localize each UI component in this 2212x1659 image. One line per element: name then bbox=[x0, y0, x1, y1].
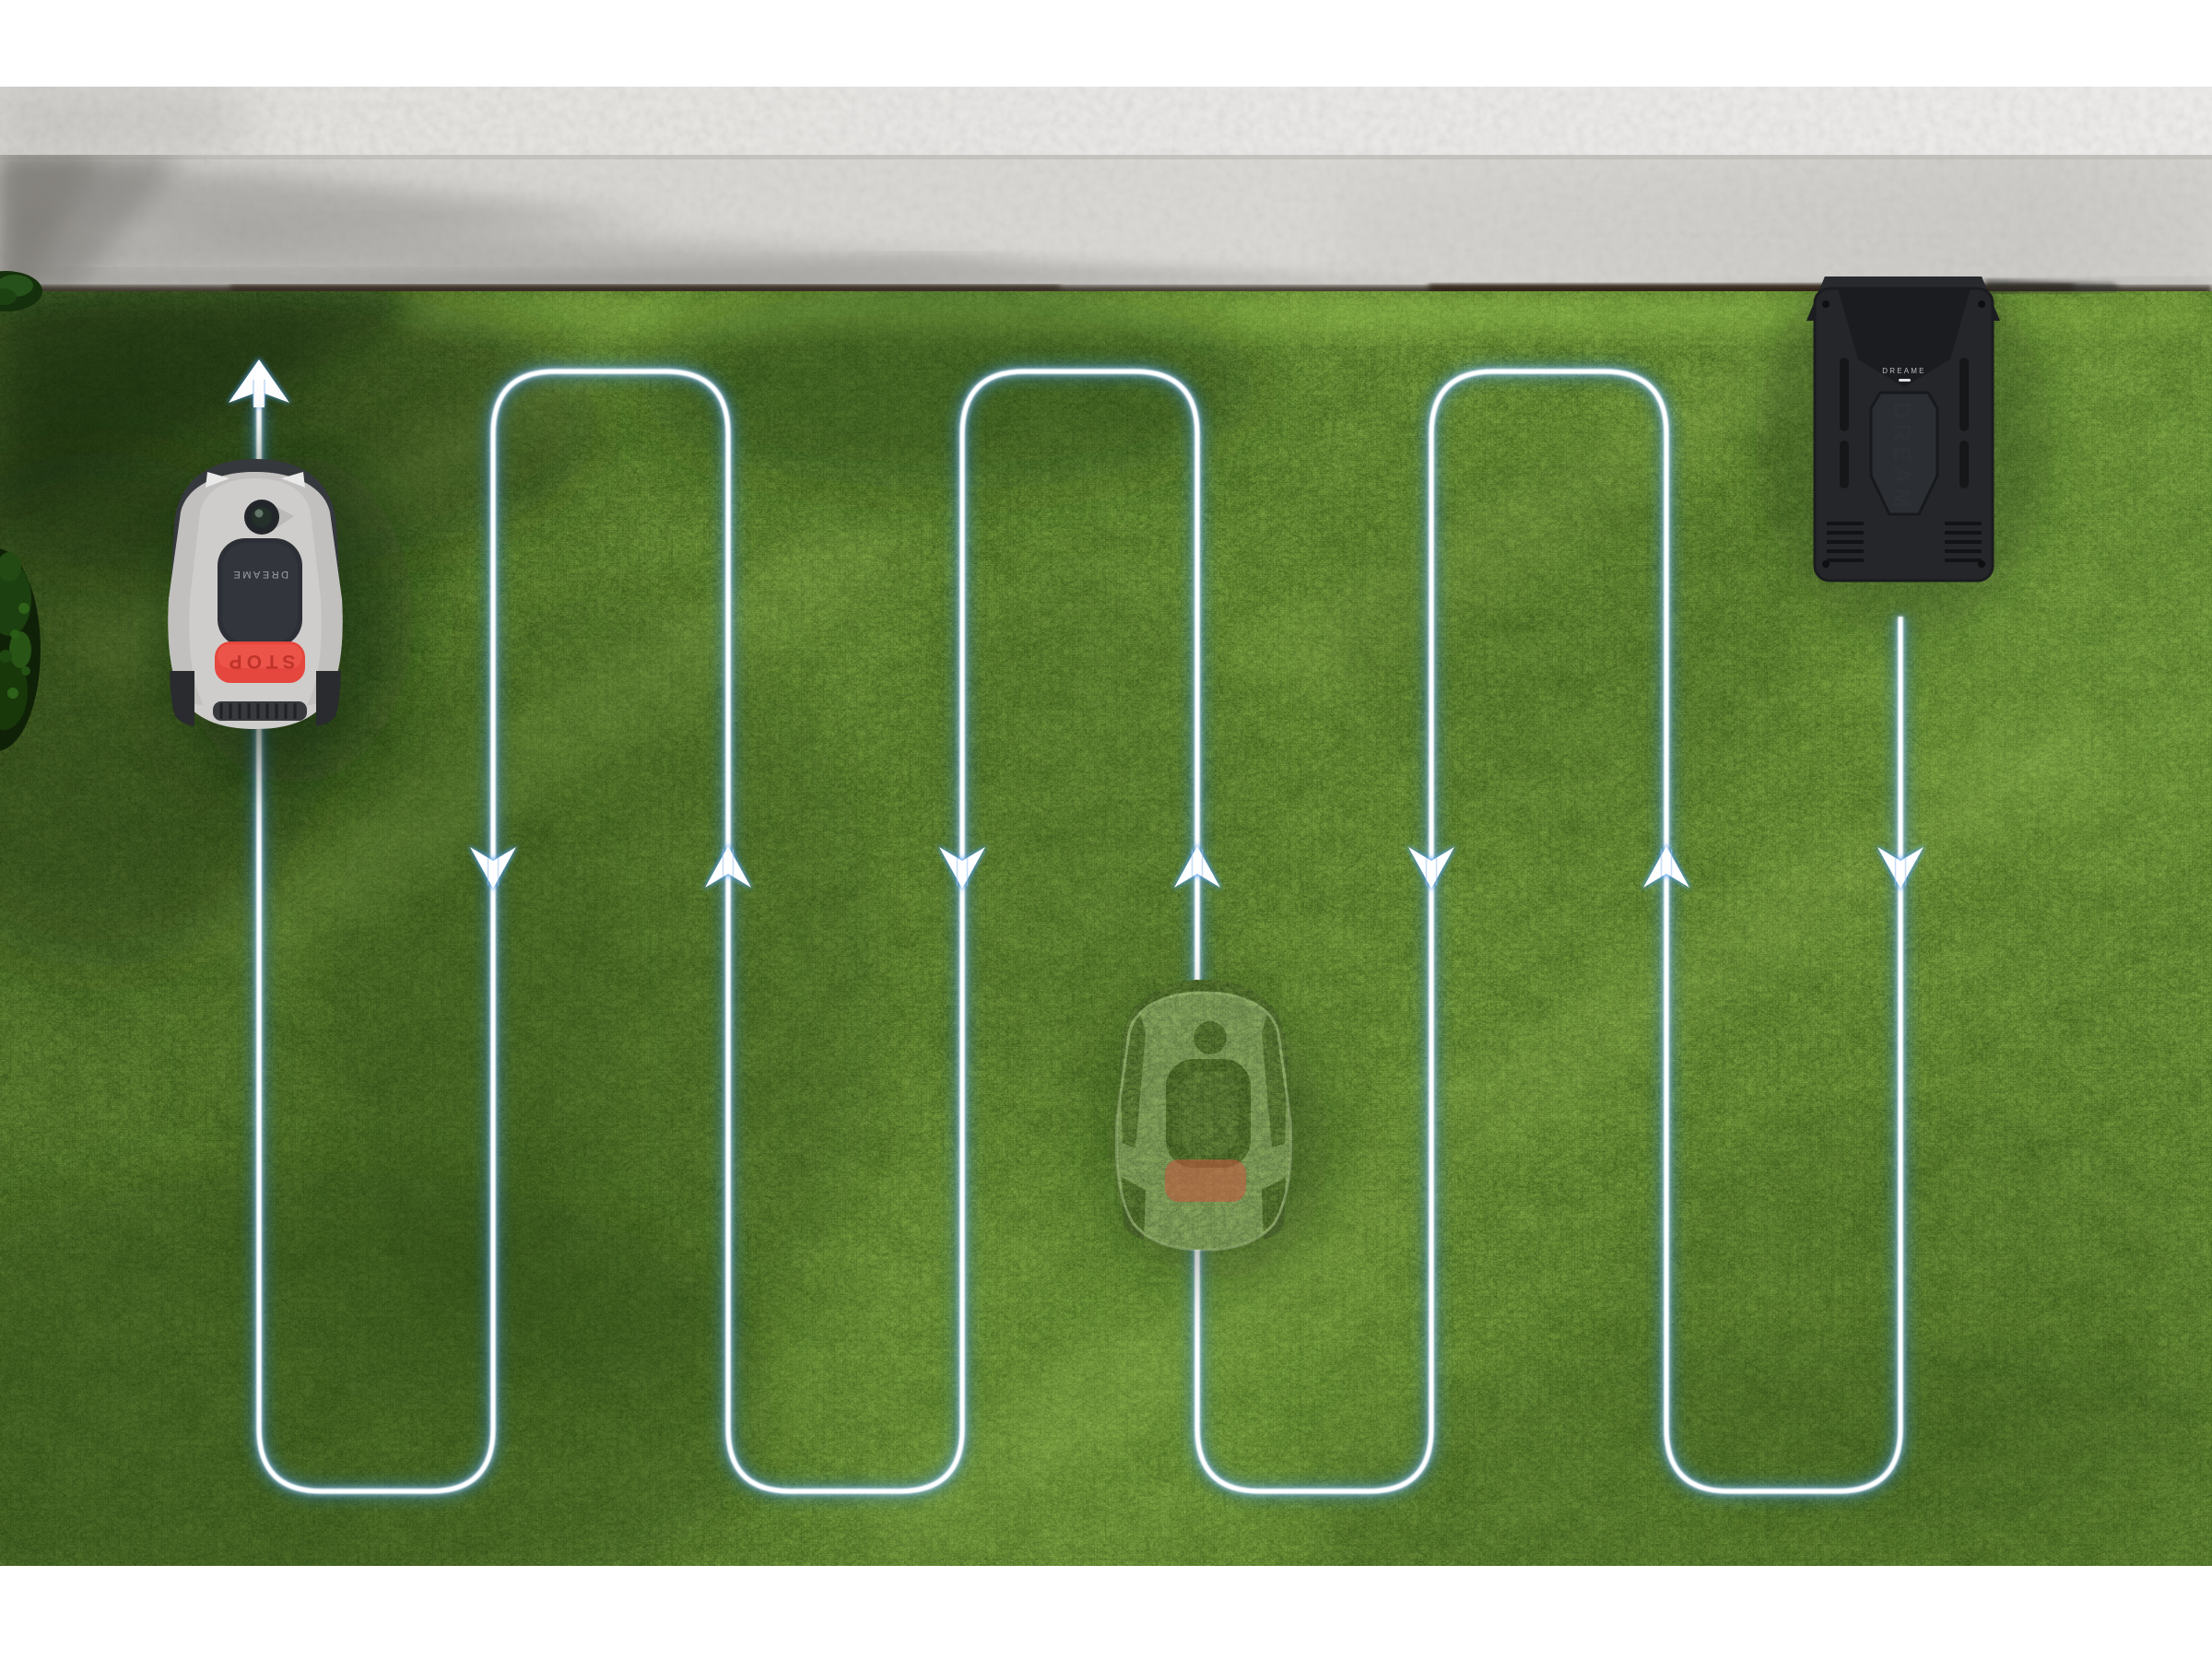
svg-text:STOP: STOP bbox=[225, 651, 296, 672]
svg-text:DREAME: DREAME bbox=[1882, 367, 1925, 375]
svg-text:DREAME: DREAME bbox=[231, 569, 288, 580]
svg-text:DREAM: DREAM bbox=[1888, 402, 1916, 512]
